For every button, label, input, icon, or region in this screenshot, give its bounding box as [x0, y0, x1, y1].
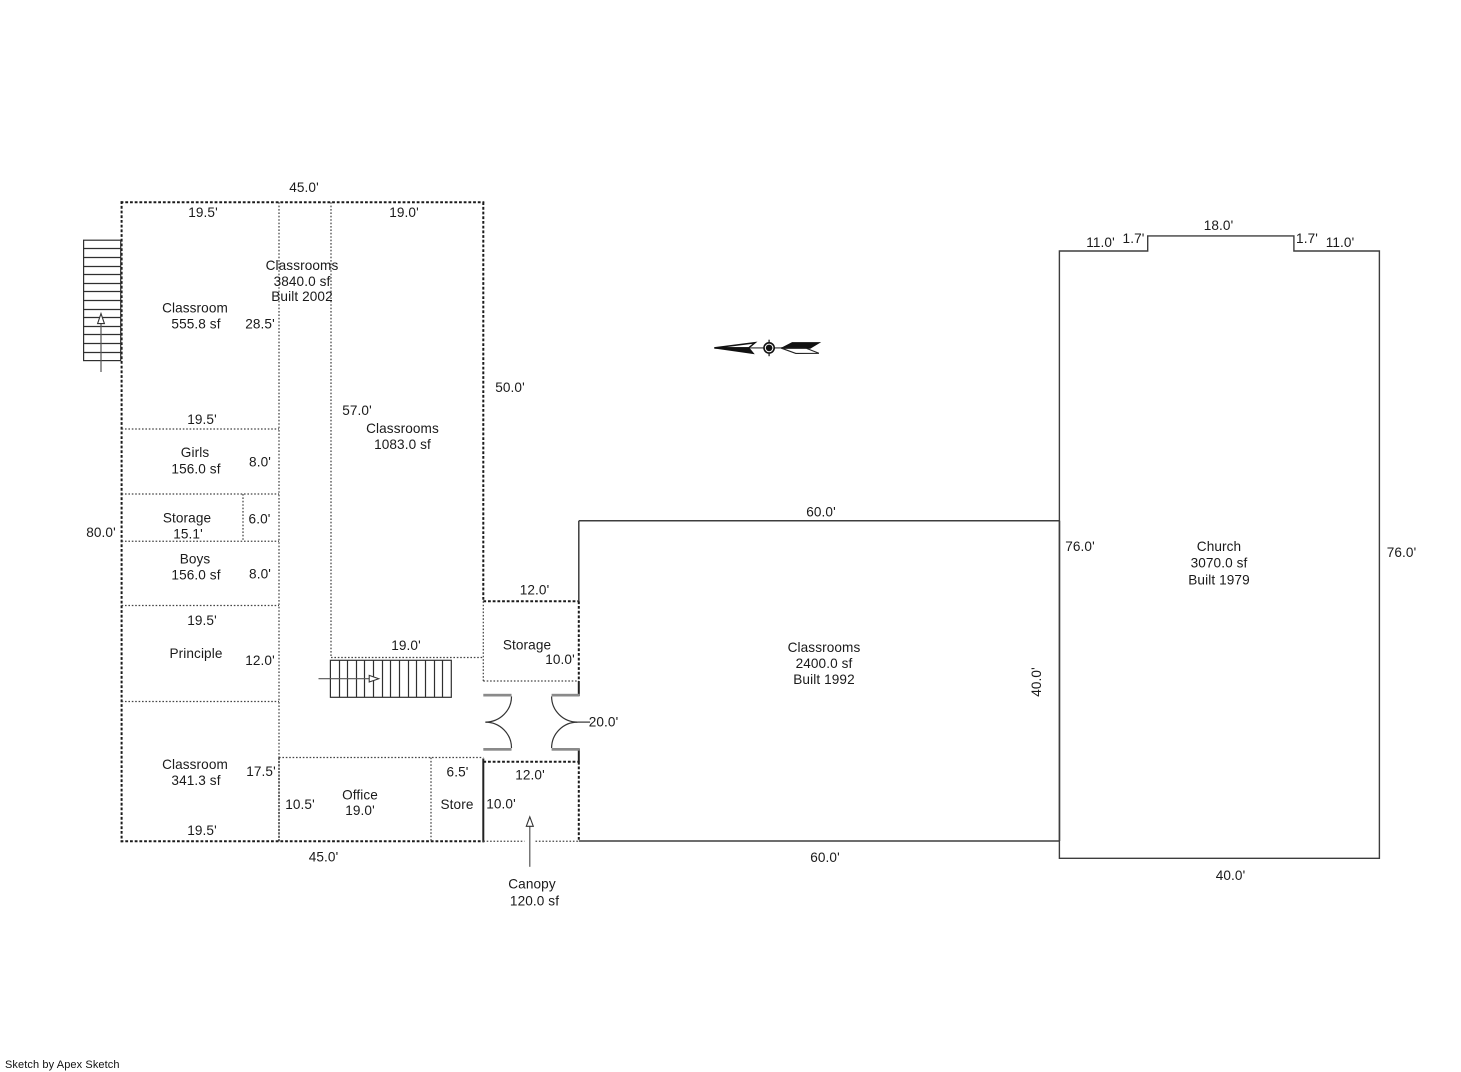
- svg-text:Sketch by Apex Sketch: Sketch by Apex Sketch: [5, 1059, 120, 1071]
- svg-text:76.0': 76.0': [1065, 539, 1095, 554]
- svg-text:17.5': 17.5': [246, 764, 276, 779]
- svg-text:Classroom: Classroom: [162, 757, 228, 772]
- svg-text:Classrooms: Classrooms: [788, 640, 861, 655]
- svg-text:3840.0 sf: 3840.0 sf: [274, 274, 331, 289]
- svg-text:Classrooms: Classrooms: [366, 421, 439, 436]
- svg-text:50.0': 50.0': [495, 380, 525, 395]
- svg-text:10.5': 10.5': [285, 797, 315, 812]
- svg-text:19.5': 19.5': [188, 205, 218, 220]
- svg-text:19.5': 19.5': [187, 823, 217, 838]
- svg-text:18.0': 18.0': [1204, 218, 1234, 233]
- svg-text:6.5': 6.5': [447, 765, 469, 780]
- svg-text:10.0': 10.0': [486, 797, 516, 812]
- svg-text:Girls: Girls: [181, 445, 210, 460]
- svg-text:19.0': 19.0': [389, 205, 419, 220]
- svg-text:3070.0 sf: 3070.0 sf: [1191, 556, 1248, 571]
- svg-text:Built 2002: Built 2002: [271, 289, 332, 304]
- svg-text:120.0 sf: 120.0 sf: [510, 894, 559, 909]
- svg-text:1.7': 1.7': [1296, 231, 1318, 246]
- svg-text:15.1': 15.1': [173, 527, 203, 542]
- svg-text:Built 1979: Built 1979: [1188, 573, 1249, 588]
- svg-text:11.0': 11.0': [1326, 235, 1355, 250]
- svg-text:6.0': 6.0': [249, 512, 271, 527]
- svg-text:Classrooms: Classrooms: [266, 258, 339, 273]
- svg-text:20.0': 20.0': [589, 715, 619, 730]
- svg-text:12.0': 12.0': [515, 768, 545, 783]
- svg-text:555.8 sf: 555.8 sf: [171, 317, 220, 332]
- svg-text:12.0': 12.0': [245, 653, 275, 668]
- svg-text:Storage: Storage: [163, 511, 211, 526]
- svg-text:156.0 sf: 156.0 sf: [171, 568, 220, 583]
- svg-text:Built 1992: Built 1992: [793, 672, 854, 687]
- svg-text:76.0': 76.0': [1387, 545, 1417, 560]
- svg-text:1083.0 sf: 1083.0 sf: [374, 437, 431, 452]
- svg-text:Storage: Storage: [503, 638, 551, 653]
- svg-text:12.0': 12.0': [520, 583, 550, 598]
- svg-text:Boys: Boys: [180, 552, 211, 567]
- svg-text:19.0': 19.0': [345, 803, 375, 818]
- svg-text:80.0': 80.0': [86, 525, 116, 540]
- svg-text:57.0': 57.0': [342, 403, 372, 418]
- svg-text:341.3 sf: 341.3 sf: [171, 773, 220, 788]
- svg-text:40.0': 40.0': [1216, 868, 1246, 883]
- svg-text:Church: Church: [1197, 539, 1241, 554]
- svg-text:40.0': 40.0': [1029, 667, 1044, 697]
- svg-text:2400.0 sf: 2400.0 sf: [796, 656, 853, 671]
- svg-text:19.5': 19.5': [187, 412, 217, 427]
- svg-text:19.5': 19.5': [187, 613, 217, 628]
- svg-text:8.0': 8.0': [249, 455, 271, 470]
- svg-text:19.0': 19.0': [391, 638, 421, 653]
- svg-text:10.0': 10.0': [545, 652, 575, 667]
- svg-text:60.0': 60.0': [806, 505, 836, 520]
- svg-text:Office: Office: [342, 788, 378, 803]
- svg-text:11.0': 11.0': [1086, 235, 1115, 250]
- svg-text:156.0 sf: 156.0 sf: [171, 462, 220, 477]
- svg-text:28.5': 28.5': [245, 317, 275, 332]
- svg-text:Canopy: Canopy: [508, 877, 556, 892]
- svg-text:45.0': 45.0': [309, 850, 339, 865]
- svg-text:Principle: Principle: [169, 646, 222, 661]
- svg-text:60.0': 60.0': [810, 850, 840, 865]
- svg-text:8.0': 8.0': [249, 567, 271, 582]
- svg-text:Store: Store: [441, 797, 474, 812]
- svg-text:1.7': 1.7': [1123, 231, 1145, 246]
- svg-text:45.0': 45.0': [289, 180, 319, 195]
- svg-text:Classroom: Classroom: [162, 301, 228, 316]
